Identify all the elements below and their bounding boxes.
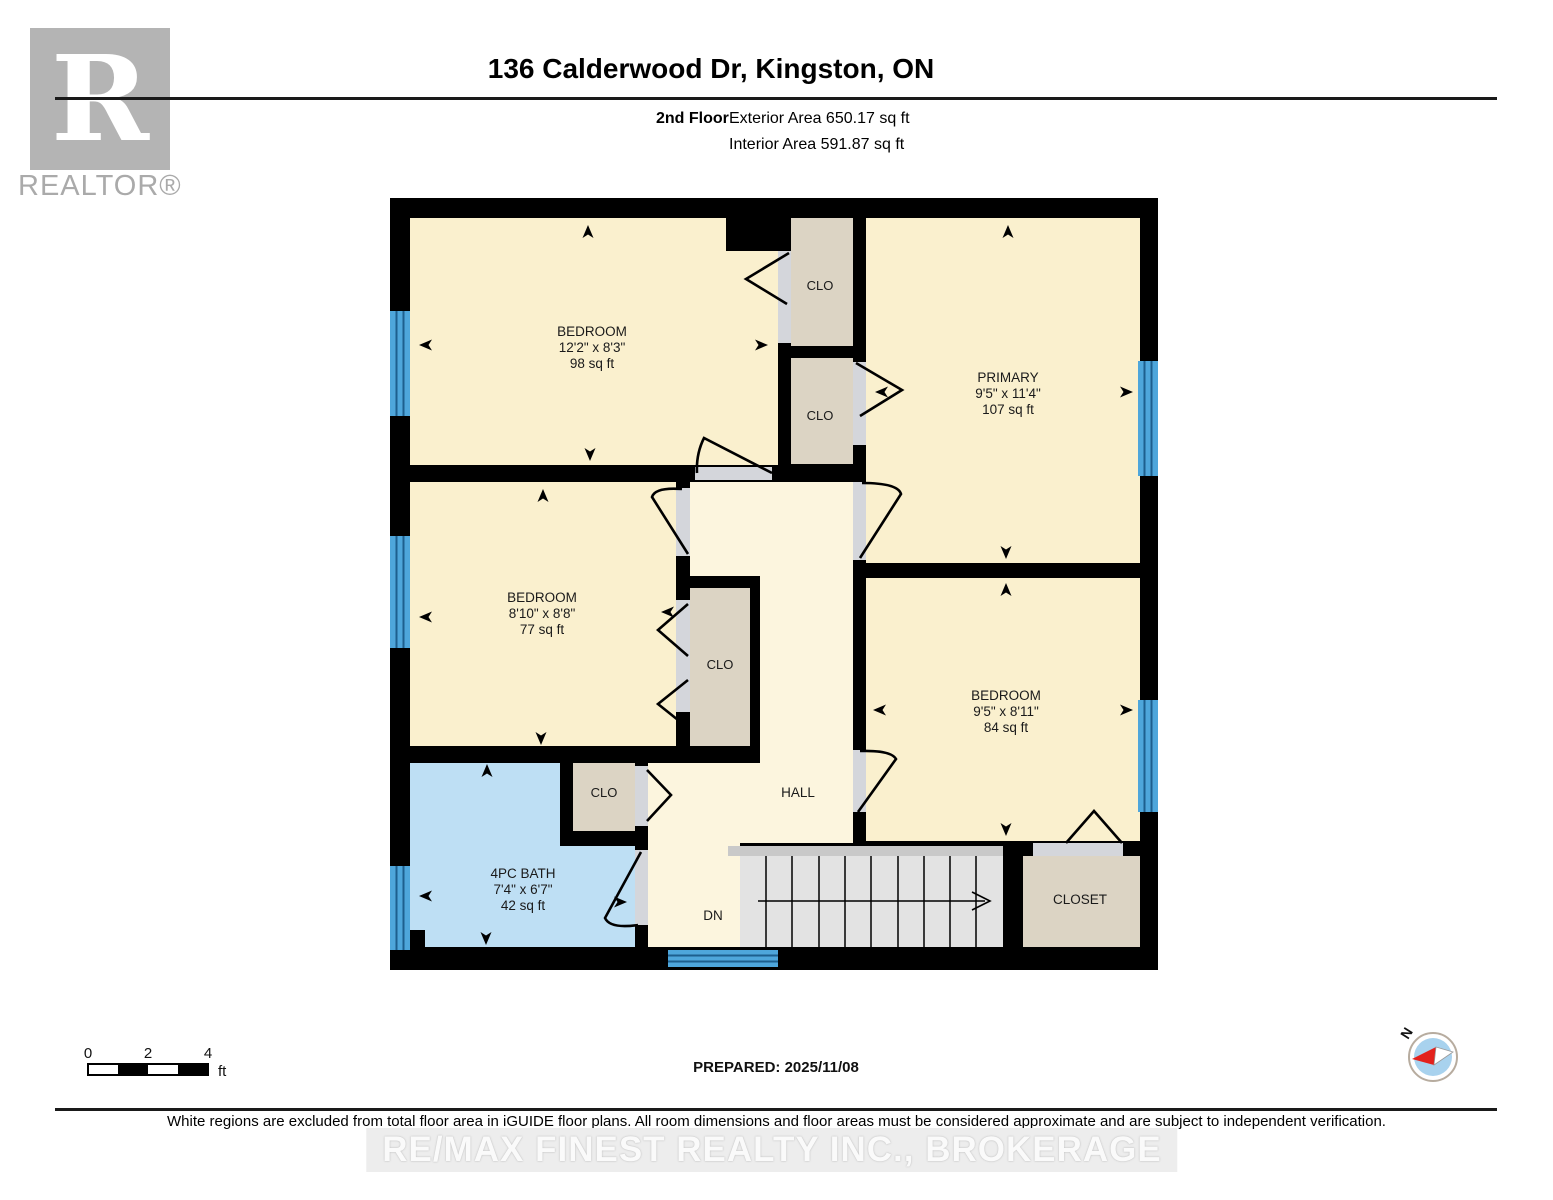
room-fills	[410, 215, 1140, 947]
window	[1138, 700, 1158, 812]
hall-top-fill	[690, 482, 853, 576]
dn-corridor-fill	[648, 843, 740, 947]
floorplan-drawing: BEDROOM 12'2" x 8'3" 98 sq ft CLO CLO PR…	[0, 0, 1553, 1200]
room-area: 98 sq ft	[570, 356, 615, 371]
room-label: CLO	[591, 785, 618, 800]
scale-bar-segment	[178, 1064, 208, 1075]
scale-bar: 0 2 4 ft	[78, 1040, 258, 1088]
staircase	[728, 846, 1003, 947]
window	[390, 866, 410, 950]
scale-tick: 0	[84, 1045, 92, 1062]
window	[1138, 361, 1158, 476]
hall-bottom-fill	[648, 763, 853, 843]
room-area: 77 sq ft	[520, 622, 565, 637]
scale-unit: ft	[218, 1063, 227, 1080]
footer-divider	[55, 1108, 1497, 1111]
room-label: CLO	[807, 278, 834, 293]
room-label: BEDROOM	[507, 590, 577, 605]
room-dims: 12'2" x 8'3"	[559, 340, 626, 355]
room-label: BEDROOM	[557, 324, 627, 339]
room-label: DN	[703, 908, 723, 923]
room-label: BEDROOM	[971, 688, 1041, 703]
window	[390, 311, 410, 416]
compass-north-label: N	[1400, 1025, 1416, 1042]
room-label: CLO	[707, 657, 734, 672]
compass-icon: N	[1400, 1024, 1464, 1088]
room-area: 107 sq ft	[982, 402, 1034, 417]
hall-mid-fill	[760, 576, 853, 763]
room-dims: 9'5" x 11'4"	[975, 386, 1041, 401]
window	[668, 950, 778, 967]
room-label: CLO	[807, 408, 834, 423]
room-dims: 7'4" x 6'7"	[493, 882, 552, 897]
stair-rail	[728, 846, 1003, 856]
floor-plan-page: R REALTOR® 136 Calderwood Dr, Kingston, …	[0, 0, 1553, 1200]
window	[390, 536, 410, 648]
room-dims: 8'10" x 8'8"	[509, 606, 576, 621]
scale-tick: 4	[204, 1045, 212, 1062]
scale-bar-segment	[118, 1064, 148, 1075]
room-label: PRIMARY	[977, 370, 1038, 385]
scale-tick: 2	[144, 1045, 152, 1062]
room-label: CLOSET	[1053, 892, 1107, 907]
room-dims: 9'5" x 8'11"	[973, 704, 1039, 719]
room-label: HALL	[781, 785, 815, 800]
room-area: 84 sq ft	[984, 720, 1029, 735]
room-area: 42 sq ft	[501, 898, 546, 913]
brokerage-watermark: RE/MAX FINEST REALTY INC., BROKERAGE	[366, 1128, 1177, 1172]
prepared-date: PREPARED: 2025/11/08	[693, 1059, 859, 1076]
room-label: 4PC BATH	[490, 866, 555, 881]
